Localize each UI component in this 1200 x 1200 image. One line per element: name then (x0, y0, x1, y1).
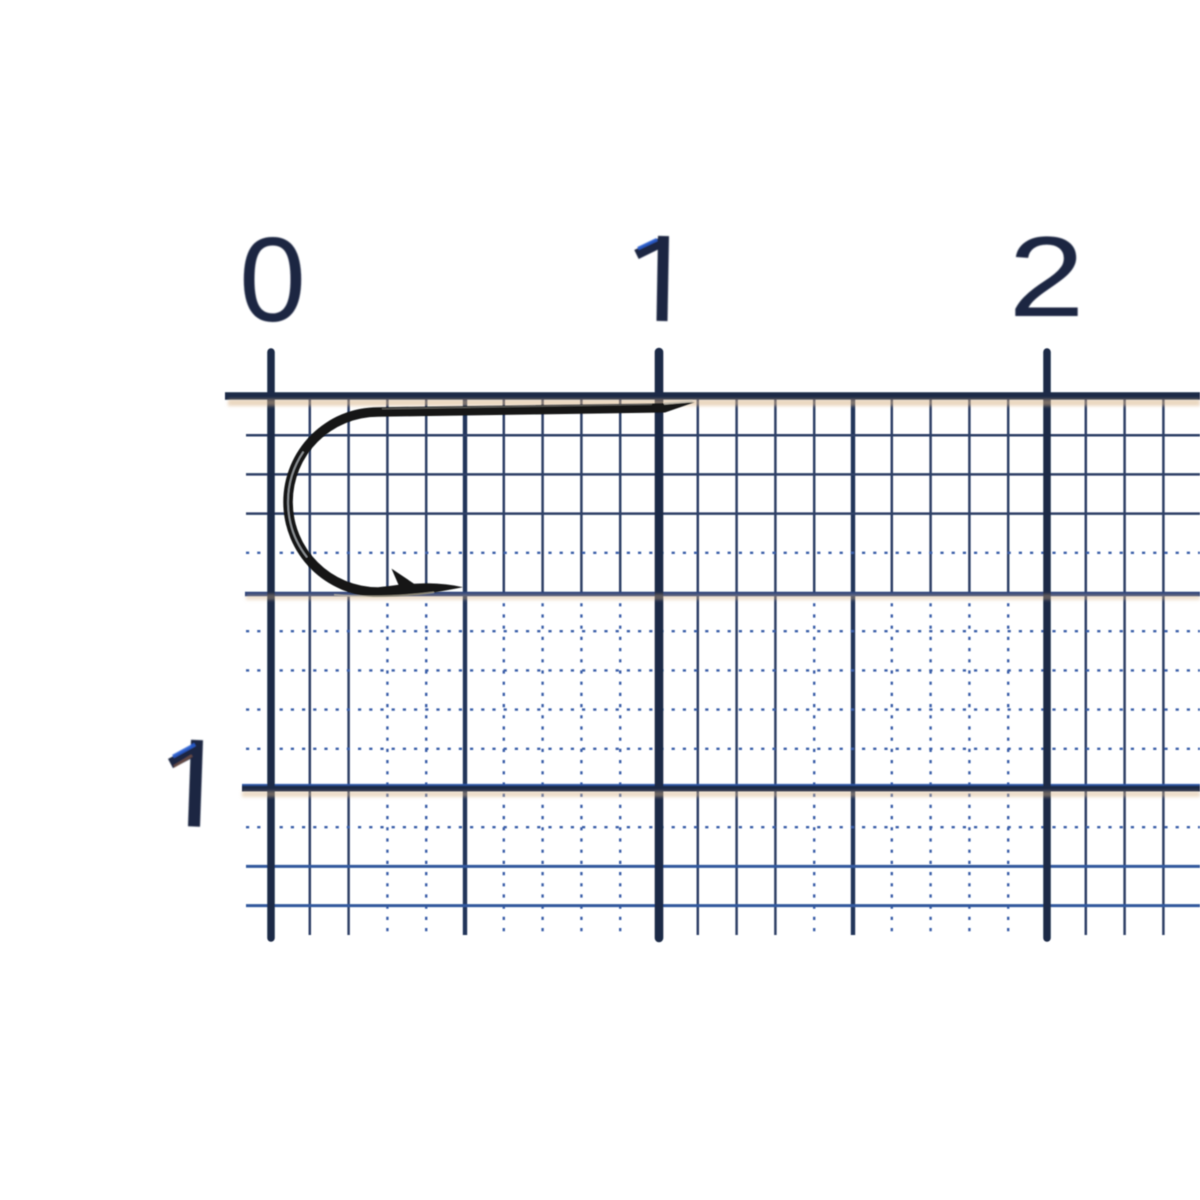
svg-text:0: 0 (239, 213, 306, 347)
svg-text:2: 2 (1008, 213, 1084, 341)
